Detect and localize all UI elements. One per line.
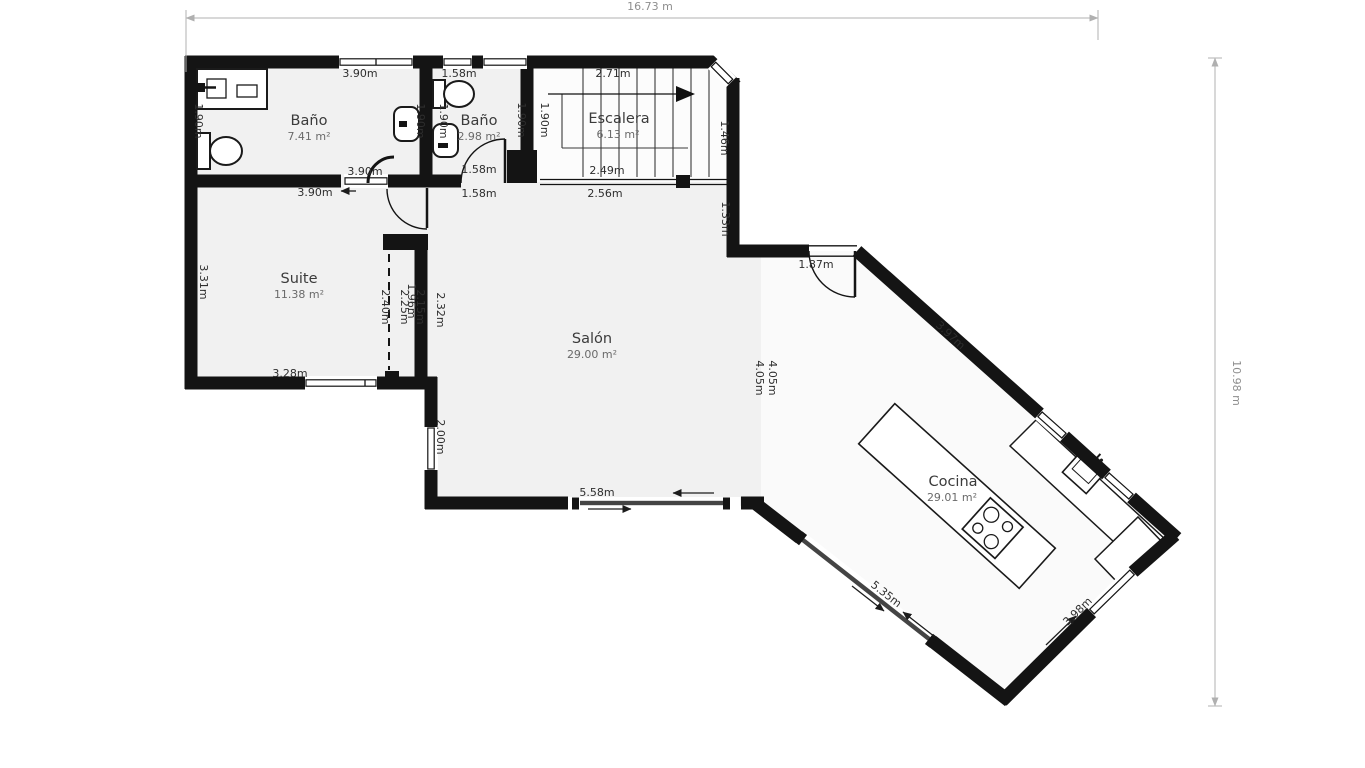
dim-bano1-right: 1.90m bbox=[414, 103, 427, 138]
room-name-suite: Suite bbox=[280, 271, 317, 287]
dim-bano1-bottom: 3.90m bbox=[347, 165, 382, 178]
window-escalera bbox=[483, 55, 527, 69]
room-name-bano1: Baño bbox=[291, 113, 328, 129]
dim-hall-right: 1.33m bbox=[719, 201, 732, 236]
dim-wardrobe-wall: 2.32m bbox=[434, 292, 447, 327]
vanity-icon bbox=[196, 69, 267, 109]
dim-bano1-left: 1.90m bbox=[192, 103, 205, 138]
dim-boundary-b: 4.05m bbox=[766, 360, 779, 395]
dim-esc-bottom: 2.49m bbox=[589, 164, 624, 177]
overall-width-label: 16.73 m bbox=[627, 0, 673, 13]
room-area-bano1: 7.41 m² bbox=[287, 130, 330, 143]
dim-esc-left-inner: 1.90m bbox=[538, 102, 551, 137]
floor-plan-canvas: Baño 7.41 m² Baño 2.98 m² Escalera 6.13 … bbox=[0, 0, 1365, 768]
dim-boundary-a: 4.05m bbox=[753, 360, 766, 395]
dim-bano2-top: 1.58m bbox=[441, 67, 476, 80]
floor-plan-viewer: Baño 7.41 m² Baño 2.98 m² Escalera 6.13 … bbox=[0, 0, 1365, 768]
dim-kitchen-door: 1.87m bbox=[798, 258, 833, 271]
overall-height-label: 10.98 m bbox=[1230, 360, 1243, 406]
wardrobe-header bbox=[383, 234, 428, 250]
room-name-salon: Salón bbox=[572, 331, 612, 347]
dim-hall: 3.90m bbox=[297, 186, 332, 199]
dim-bano1-top: 3.90m bbox=[342, 67, 377, 80]
room-area-escalera: 6.13 m² bbox=[596, 128, 639, 141]
room-area-salon: 29.00 m² bbox=[567, 348, 617, 361]
dim-wardrobe-c: 2.15m bbox=[414, 289, 427, 324]
dim-wardrobe-opening: 2.40m bbox=[379, 289, 392, 324]
dim-esc-below: 2.56m bbox=[587, 187, 622, 200]
room-name-bano2: Baño bbox=[461, 113, 498, 129]
dim-salon-left: 2.00m bbox=[434, 419, 447, 454]
room-name-escalera: Escalera bbox=[588, 111, 649, 127]
dim-suite-bottom: 3.28m bbox=[272, 367, 307, 380]
room-area-cocina: 29.01 m² bbox=[927, 491, 977, 504]
dim-bano2-bottom: 1.58m bbox=[461, 163, 496, 176]
dim-chamfer: 1.46m bbox=[718, 120, 731, 155]
room-name-cocina: Cocina bbox=[928, 474, 977, 490]
window-suite bbox=[305, 376, 377, 390]
room-area-suite: 11.38 m² bbox=[274, 288, 324, 301]
dim-esc-left-outer: 1.90m bbox=[515, 102, 528, 137]
wardrobe-footer bbox=[385, 371, 399, 383]
room-area-bano2: 2.98 m² bbox=[457, 130, 500, 143]
dim-esc-top: 2.71m bbox=[595, 67, 630, 80]
dim-suite-left: 3.31m bbox=[197, 264, 210, 299]
pillar bbox=[507, 150, 537, 183]
dim-bano2-left: 1.90m bbox=[437, 103, 450, 138]
dim-bano2-below: 1.58m bbox=[461, 187, 496, 200]
dim-salon-bottom: 5.58m bbox=[579, 486, 614, 499]
